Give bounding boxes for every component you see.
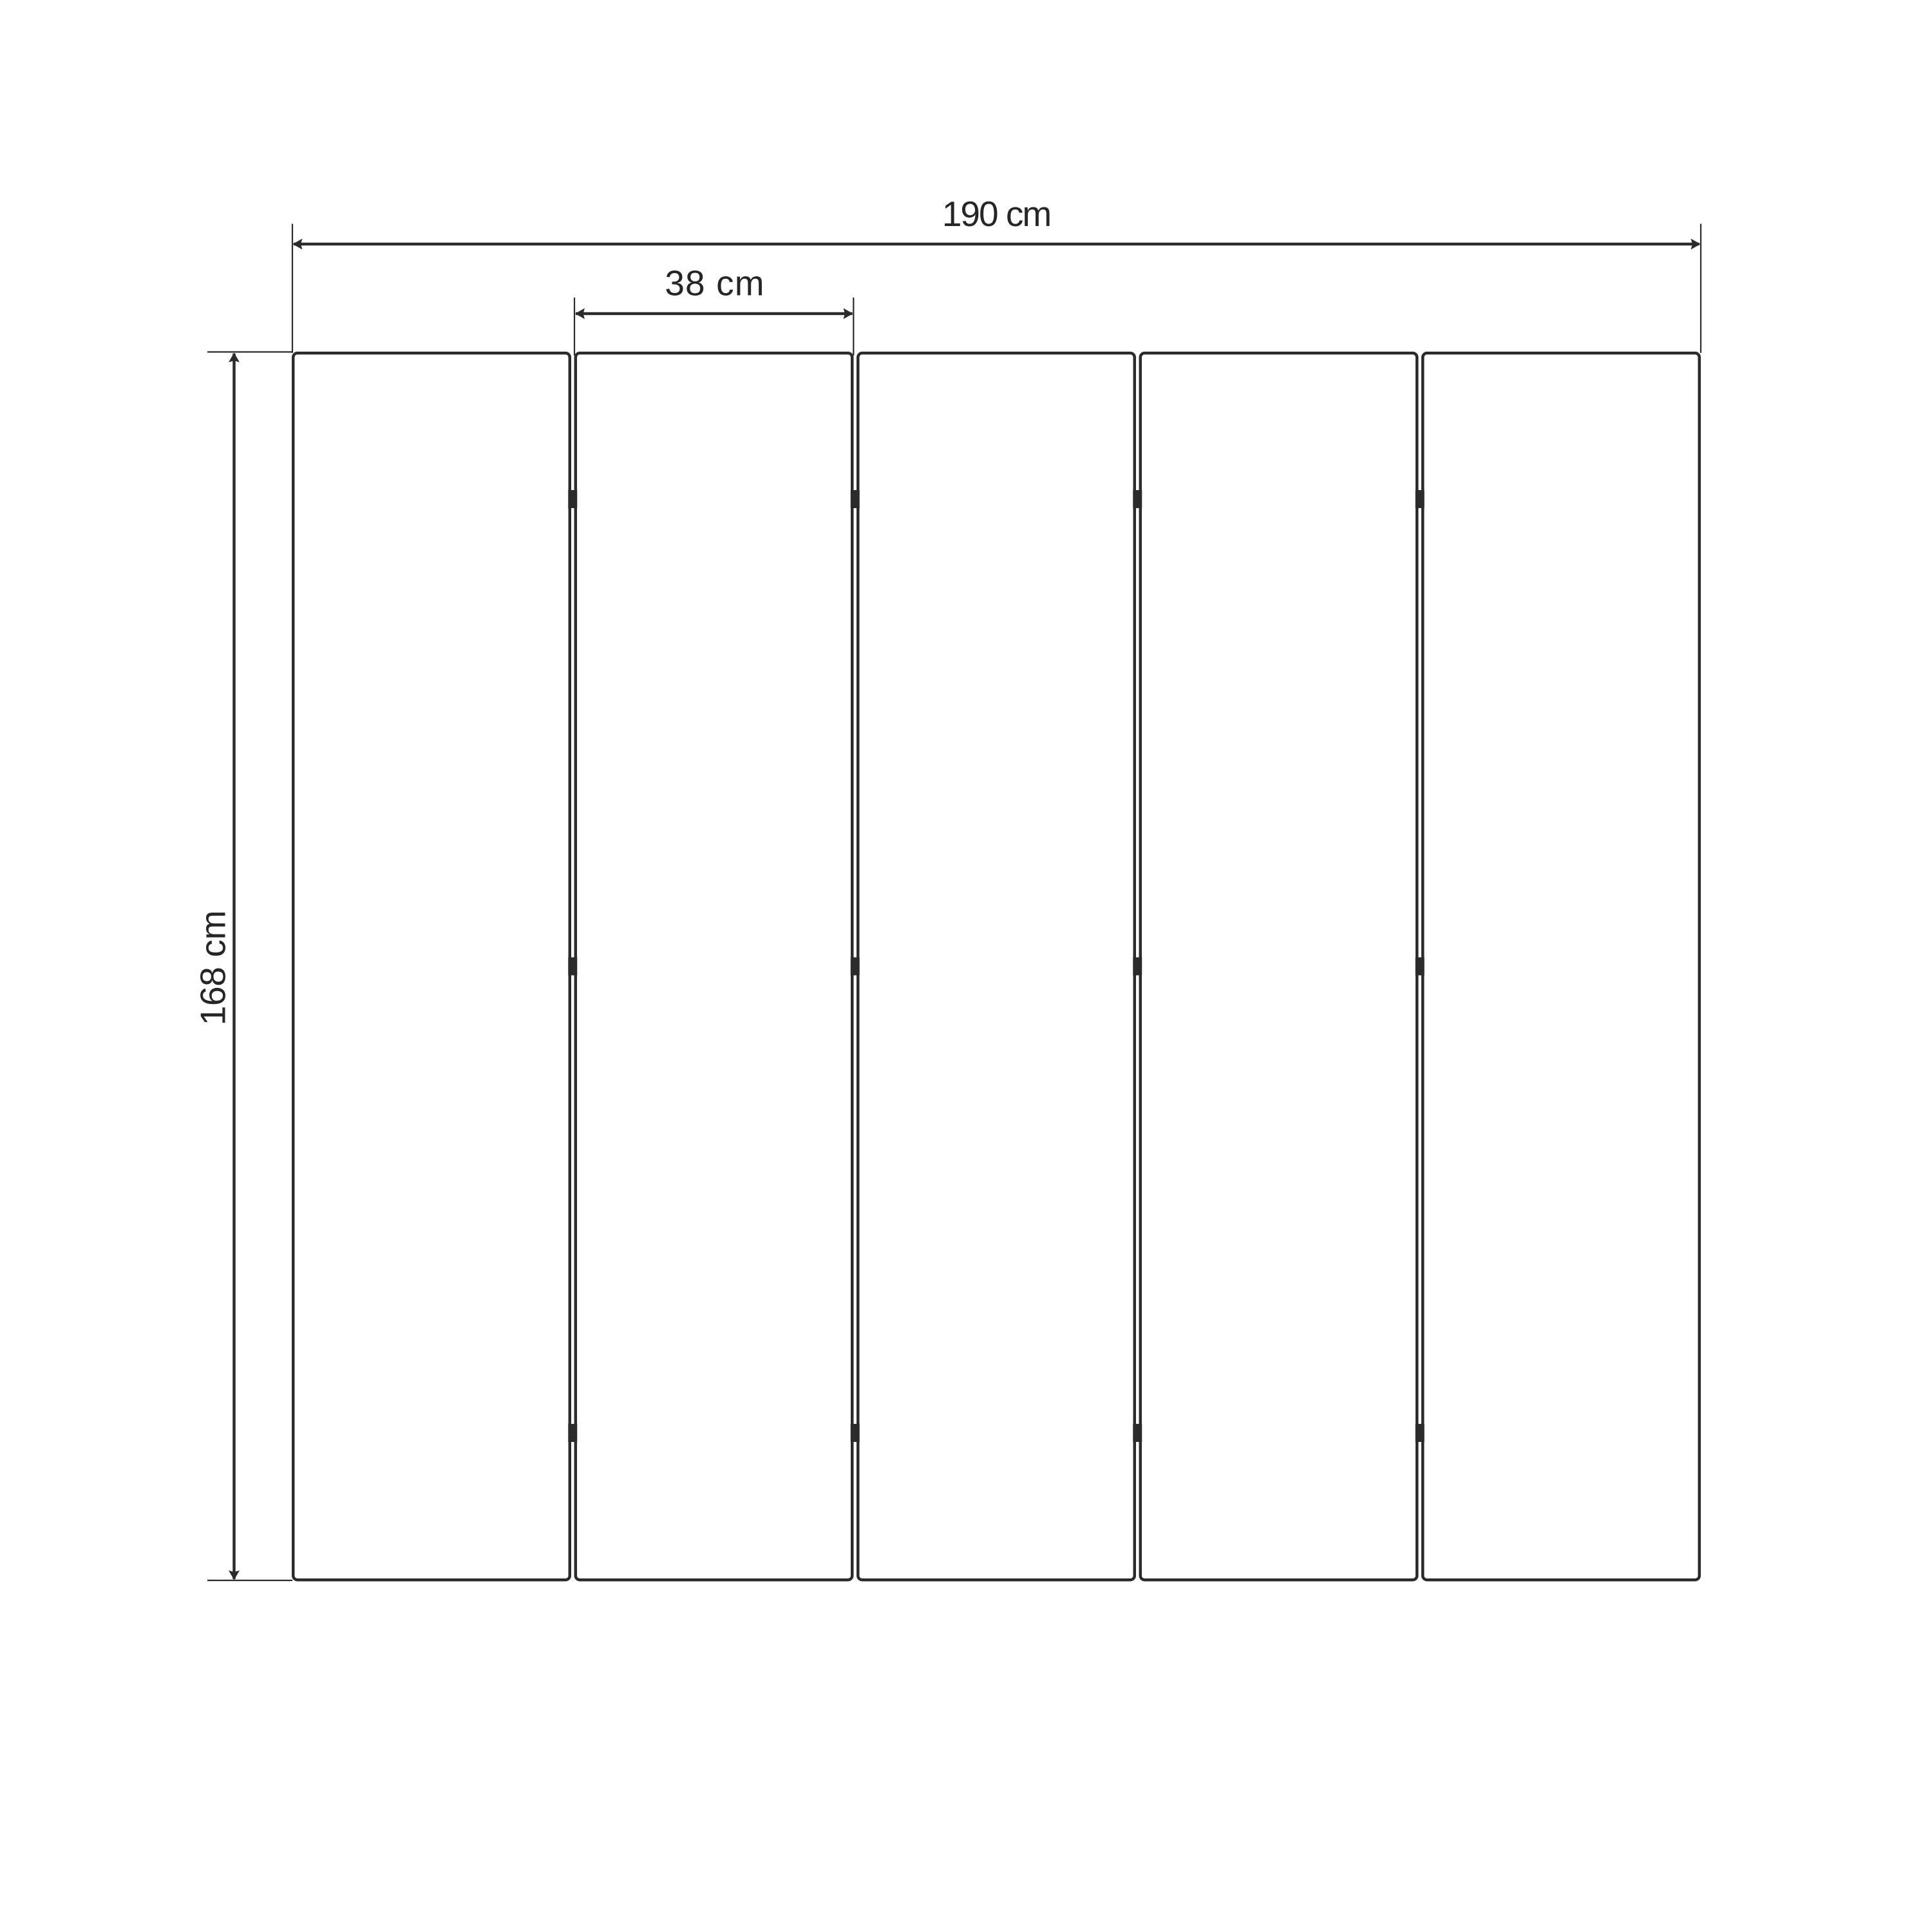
svg-text:190 cm: 190 cm — [942, 194, 1050, 234]
svg-text:38 cm: 38 cm — [665, 263, 764, 303]
svg-text:168 cm: 168 cm — [193, 911, 233, 1026]
